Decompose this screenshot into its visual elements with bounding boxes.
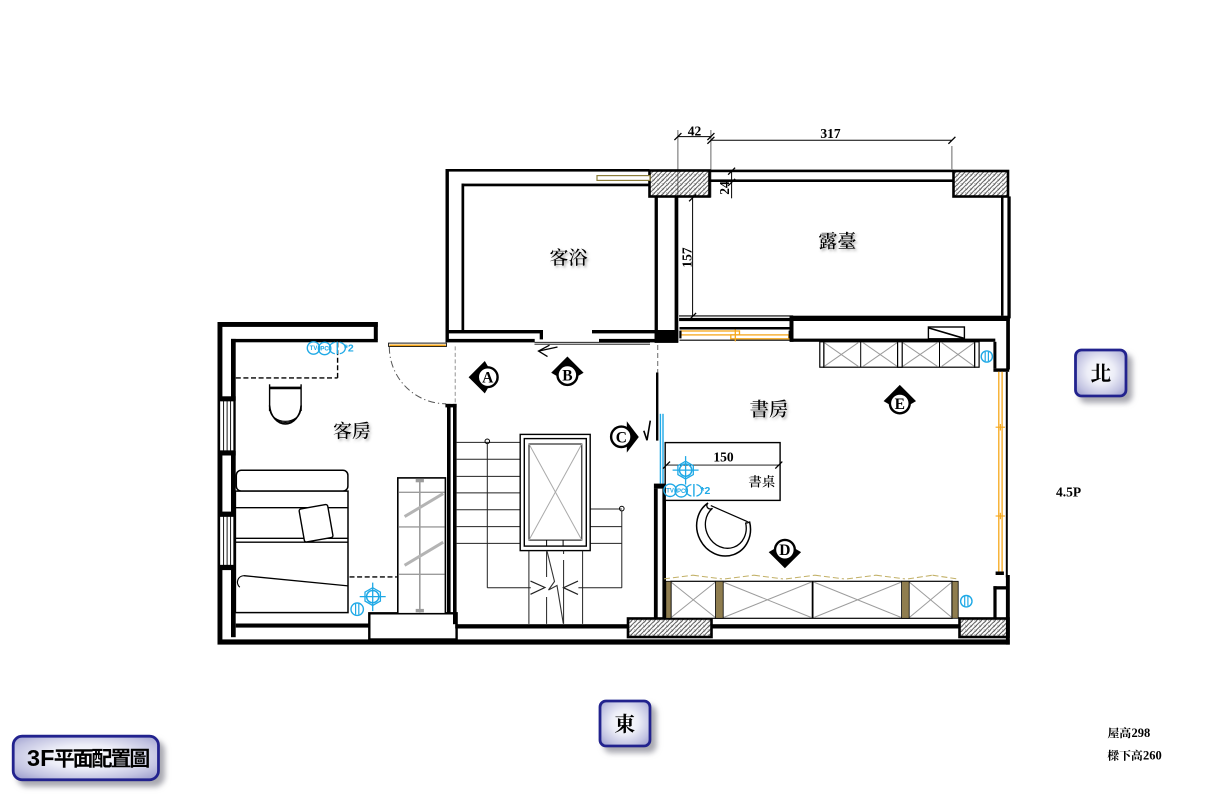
svg-text:3F: 3F xyxy=(27,745,54,771)
svg-text:TV: TV xyxy=(310,346,318,352)
svg-text:317: 317 xyxy=(820,126,841,141)
svg-text:42: 42 xyxy=(688,123,702,138)
svg-text:298: 298 xyxy=(1132,726,1151,740)
svg-text:E: E xyxy=(895,396,905,413)
svg-text:B: B xyxy=(562,367,572,384)
svg-text:4.5P: 4.5P xyxy=(1056,485,1081,500)
svg-text:260: 260 xyxy=(1143,749,1162,763)
svg-text:D: D xyxy=(779,542,790,559)
svg-text:A: A xyxy=(482,370,494,387)
svg-text:PC: PC xyxy=(677,489,686,495)
svg-text:157: 157 xyxy=(680,247,695,268)
svg-text:TV: TV xyxy=(666,489,674,495)
svg-text:*2: *2 xyxy=(700,485,710,497)
svg-text:150: 150 xyxy=(713,450,734,465)
svg-text:C: C xyxy=(616,429,627,446)
svg-text:*2: *2 xyxy=(344,343,354,355)
svg-text:24: 24 xyxy=(717,181,732,195)
svg-text:PC: PC xyxy=(320,347,329,353)
